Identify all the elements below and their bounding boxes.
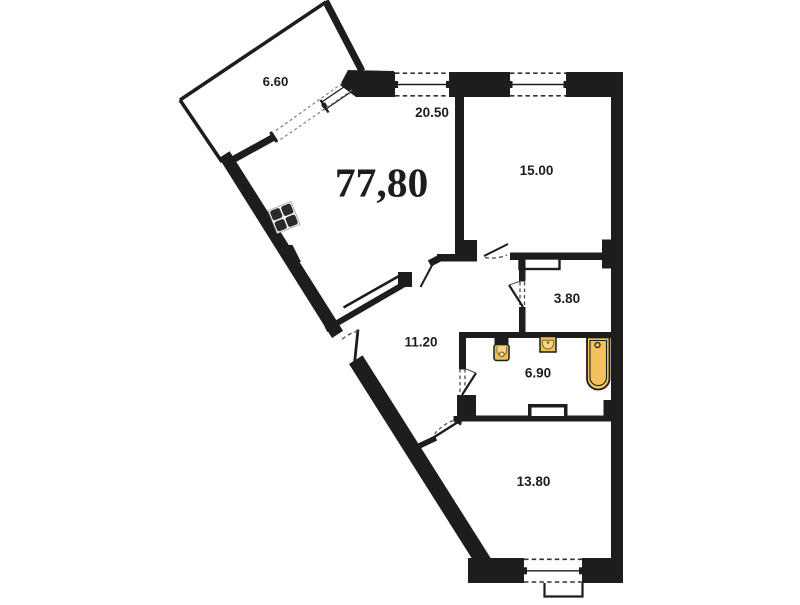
svg-text:20.50: 20.50 [415,105,449,120]
svg-text:11.20: 11.20 [404,335,437,350]
svg-text:77,80: 77,80 [335,160,428,206]
svg-text:15.00: 15.00 [520,163,554,178]
svg-text:3.80: 3.80 [554,291,580,306]
svg-text:6.60: 6.60 [263,74,289,89]
svg-text:6.90: 6.90 [525,366,551,381]
svg-text:13.80: 13.80 [517,474,551,489]
